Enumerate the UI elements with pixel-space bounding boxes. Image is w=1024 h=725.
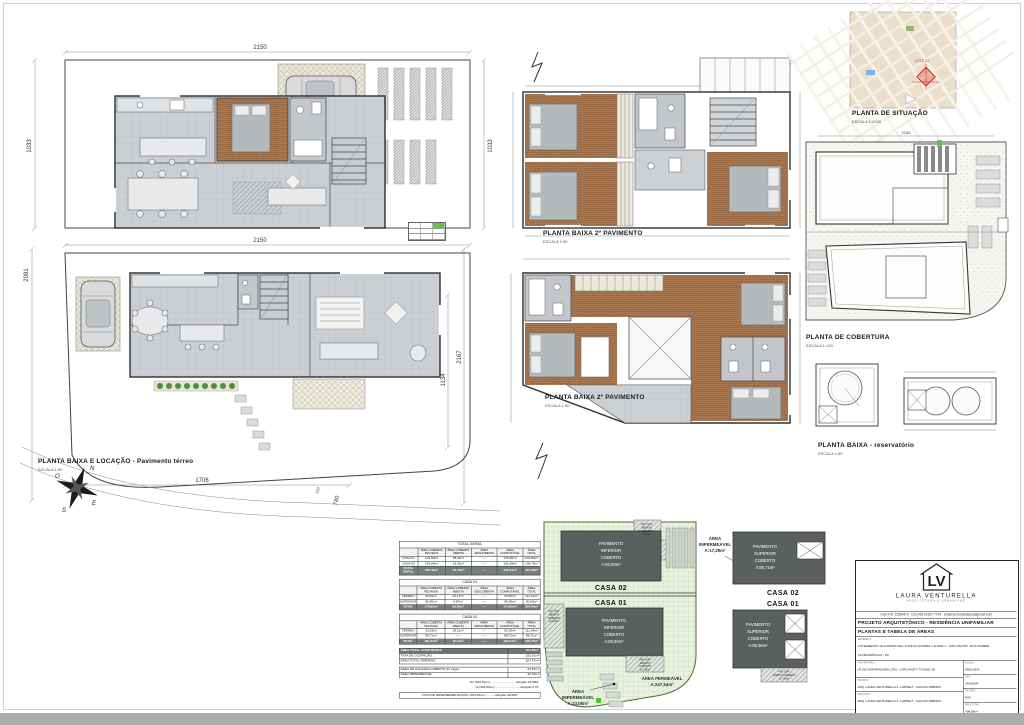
table-cell: 404,59m² <box>523 566 540 575</box>
bathroom-top-left <box>525 275 571 321</box>
legend-stamp <box>408 222 446 241</box>
floor-plan-terreo-casa02: 2150 1033 1033 <box>20 38 500 235</box>
dimension-2167: 2167 <box>457 350 463 364</box>
project-label: PROJETO: <box>858 679 962 682</box>
dimension-2150-mid: 2150 <box>253 238 267 244</box>
planA-scale: ESCALA 1:50 <box>543 239 567 244</box>
casa02-label: CASA 02 <box>595 585 627 592</box>
balcony <box>567 385 691 423</box>
site-marker-label: LOTE 02 <box>915 59 929 63</box>
dimension-1706: 1706 <box>195 478 209 484</box>
title-block-left-column: PROPRIETÁRIO: LR INCORPORADORA LTDA - CN… <box>856 661 964 714</box>
svg-text:COBERTO: COBERTO <box>755 558 776 563</box>
owner-label: PROPRIETÁRIO: <box>858 662 962 665</box>
table-casa01: CASA 01 ÁREA COBERTA FECHADAÁREA COBERTA… <box>399 579 540 610</box>
hatch-top-text: PAV. SUP. ABERTO COBERTO A:9,06m² <box>641 523 653 536</box>
svg-text:COBERTO: COBERTO <box>748 636 769 641</box>
area-total-value: 404,59m² <box>965 711 978 714</box>
reservoir-detail-1 <box>816 364 878 426</box>
svg-text:PAVIMENTO: PAVIMENTO <box>753 544 778 549</box>
svg-text:ÁREA: ÁREA <box>572 689 585 694</box>
svg-text:INFERIOR: INFERIOR <box>601 548 621 553</box>
table-casa02: CASA 02 ÁREA COBERTA FECHADAÁREA COBERTA… <box>399 614 540 645</box>
car-pad <box>76 277 120 351</box>
compass-s: S <box>62 508 66 514</box>
address-label: ENDEREÇO: <box>858 638 1015 641</box>
exec-author-field: EXECUÇÃO: ARQ. LAURA VENTURELLA A. LOPPE… <box>856 692 963 706</box>
title-block: LV LAURA VENTURELLA ARQUITETURA E URBANI… <box>855 560 1019 713</box>
break-symbol-2 <box>533 443 553 481</box>
cobertura-scale: ESCALA 1:100 <box>806 343 833 348</box>
dimension-1033-right: 1033 <box>488 139 494 153</box>
dimension-2081: 2081 <box>24 268 30 282</box>
staircase <box>260 275 288 319</box>
floor-plan-terreo-locacao: 2150 2081 2167 1134 1706 740 100 <box>20 235 500 517</box>
utility-box <box>998 218 1008 232</box>
hatch-pav-sup-bottom: PAV. SUP. ABERTO COBERTO A:7,55m² <box>626 656 664 672</box>
table-cell: 181,64m² <box>417 639 445 644</box>
compass-e: E <box>92 501 97 507</box>
table-cell: ÁREA IMPERMEÁVEL <box>399 672 508 677</box>
skylight-void <box>629 317 691 379</box>
table-cell: 114,01m² <box>523 594 540 599</box>
table-cell: 176,80m² <box>417 605 445 610</box>
dimension-1134: 1134 <box>441 373 447 387</box>
table-cell: 204,84m² <box>523 556 540 561</box>
break-symbol <box>532 52 542 82</box>
project-author-value: ARQ. LAURA VENTURELLA A. LOPPELT - CAU-R… <box>858 686 942 689</box>
note-impermeabilizacao: TAXA DE IMPERMEABILIZAÇÃO (263,53m²)....… <box>399 692 540 698</box>
dimension-100: 100 <box>314 486 321 494</box>
escala-label: ESCALA: <box>965 662 1015 665</box>
permeavel-label: ÁREA PERMEÁVEL <box>642 676 683 681</box>
svg-text:COBERTO: COBERTO <box>601 555 622 560</box>
owner-value: LR INCORPORADORA LTDA - CNPJ:44.877.771/… <box>858 669 936 672</box>
title-block-logo-area: LV LAURA VENTURELLA ARQUITETURA E URBANI… <box>856 561 1017 612</box>
table-row: TOTAL176,80m²28,04m²----176,80m²204,84m² <box>399 605 540 610</box>
svg-text:LV: LV <box>927 573 945 590</box>
situacao-scale: ESCALA 1:2000 <box>852 119 881 124</box>
drawing-sheet: 2150 1033 1033 <box>0 0 1024 713</box>
plan1-title: PLANTA BAIXA E LOCAÇÃO - Pavimento térre… <box>38 458 193 465</box>
rev-value: R04 <box>965 697 971 700</box>
studio-subtitle: ARQUITETURA E URBANISMO <box>907 600 966 603</box>
table-cell: 527,47m² <box>508 659 540 664</box>
svg-text:A:92,93m²: A:92,93m² <box>601 562 621 567</box>
casa01-superior-block: PAVIMENTO SUPERIOR COBERTO A:85,96m² <box>733 610 807 668</box>
staircase <box>710 98 756 146</box>
svg-text:PAVIMENTO: PAVIMENTO <box>746 622 771 627</box>
table-cell: 358,44m² <box>418 566 446 575</box>
bedroom-2 <box>525 162 633 226</box>
casa02-label: CASA 02 <box>767 590 799 597</box>
svg-text:PAVIMENTO: PAVIMENTO <box>602 618 627 623</box>
dimension-1033-left: 1033 <box>27 139 33 153</box>
planA-title: PLANTA BAIXA 2º PAVIMENTO <box>543 230 643 237</box>
svg-text:A:23,05m²: A:23,05m² <box>568 701 590 706</box>
table-resumo-2: ÁREA DE CALÇADA COBERTA (C/ vaga)29,52m²… <box>399 667 540 678</box>
highlight-mark <box>596 698 601 703</box>
svg-text:SUPERIOR: SUPERIOR <box>754 551 776 556</box>
situation-map: LOTE 02 <box>850 12 956 108</box>
rev-label: REVISÃO: <box>965 690 1015 693</box>
compass-o: O <box>55 474 60 480</box>
casa02-inferior-block: PAVIMENTO INFERIOR COBERTO A:92,93m² <box>561 531 661 581</box>
map-feature-blue <box>866 70 875 75</box>
map-feature-green <box>906 26 914 31</box>
table-cell: 18,11m² <box>445 639 471 644</box>
bathroom <box>238 275 258 309</box>
table-cell: TOTAL <box>399 639 417 644</box>
table-row: ÁREA TOTAL TERRENO527,47m² <box>399 659 540 664</box>
casa01-inferior-block: PAVIMENTO INFERIOR COBERTO A:90,84m² <box>566 608 663 656</box>
bedroom-top-right <box>741 283 785 325</box>
table-cell: ---- <box>471 605 497 610</box>
reservoir-plan <box>812 360 1002 440</box>
studio-name: LAURA VENTURELLA <box>896 592 977 599</box>
situacao-title: PLANTA DE SITUAÇÃO <box>852 110 928 117</box>
svg-text:IMPERMEÁVEL: IMPERMEÁVEL <box>699 542 732 547</box>
garden-strip <box>154 381 238 391</box>
pergola <box>914 144 956 174</box>
svg-text:A:9,06m²: A:9,06m² <box>642 533 652 536</box>
roof-plan: 2150 <box>798 130 1016 330</box>
svg-text:INFERIOR: INFERIOR <box>604 625 624 630</box>
plan1-scale: ESCALA 1:50 <box>38 467 62 472</box>
bedroom-left <box>529 333 609 377</box>
svg-text:A:90,84m²: A:90,84m² <box>604 639 624 644</box>
area-tables: TOTAL GERAL ÁREA COBERTA FECHADAÁREA COB… <box>399 541 544 713</box>
reservoir-detail-2 <box>904 372 996 430</box>
svg-text:SUPERIOR: SUPERIOR <box>747 629 769 634</box>
table-cell: 199,75m² <box>523 561 540 566</box>
table-cell: TOTAL GERAL <box>399 566 417 575</box>
hatch-pav-sup-bottom: PAV. SUP. ABERTO COBERTO A:7,55m² <box>761 668 807 682</box>
table-cell: 28,04m² <box>445 605 471 610</box>
table-cell: ---- <box>472 566 498 575</box>
grass-paver-strips <box>378 68 452 184</box>
svg-text:A:85,96m²: A:85,96m² <box>748 643 768 648</box>
dimension-2150-top: 2150 <box>253 45 267 51</box>
table-row: TOTAL GERAL358,44m²46,15m²----358,44m²40… <box>399 566 540 575</box>
dimension-740: 740 <box>333 494 342 506</box>
upper-floor-area-diagram: ÁREA IMPERMEÁVEL A:17,29m² PAVIMENTO SUP… <box>695 518 837 708</box>
title-block-right-column: ESCALA: INDICADA DATA: JAN/2024 REVISÃO:… <box>964 661 1017 714</box>
table-cell: 176,80m² <box>497 605 523 610</box>
table-row: TOTAL181,64m²18,11m²----181,64m²199,75m² <box>399 639 540 644</box>
suite-bedroom <box>217 98 288 161</box>
table-cell: TÉRREO <box>399 629 417 634</box>
table-cell: ---- <box>471 639 497 644</box>
svg-text:A:7,55m²: A:7,55m² <box>640 669 650 672</box>
table-cell: SUPERIOR <box>399 634 417 639</box>
hatch-pav-sup-left: PAV. SUP. ABERTO COBERTO A:8,06m² <box>544 604 564 648</box>
staircase <box>332 138 366 184</box>
bedroom-bottom-right <box>731 387 781 419</box>
dimension-2150-roof: 2150 <box>902 130 912 135</box>
project-title: PROJETO ARQUITETÔNICO - RESIDÊNCIA UNIFA… <box>856 619 1017 628</box>
compass-n: N <box>90 466 95 472</box>
terrace-gravel <box>293 379 365 409</box>
permeable-area-diagram: PAVIMENTO INFERIOR COBERTO A:92,93m² PAV… <box>538 516 706 713</box>
bedroom-1 <box>525 94 633 158</box>
closet-strip <box>575 275 663 291</box>
table-cell: 111,04m² <box>523 629 540 634</box>
svg-text:PAVIMENTO: PAVIMENTO <box>599 541 624 546</box>
svg-text:A:7,55m²: A:7,55m² <box>779 678 789 681</box>
bathrooms-center <box>635 94 705 190</box>
table-cell: TÉRREO <box>399 594 417 599</box>
svg-text:ÁREA: ÁREA <box>709 536 722 541</box>
stepping-stones <box>235 395 270 450</box>
casa01-label: CASA 01 <box>767 601 799 608</box>
reservatorio-scale: ESCALA 1:50 <box>818 451 842 456</box>
escala-value: INDICADA <box>965 669 979 672</box>
cobertura-title: PLANTA DE COBERTURA <box>806 334 890 341</box>
floor-plan-2pav-a <box>505 50 805 242</box>
svg-text:COBERTO: COBERTO <box>604 632 625 637</box>
table-cell: 204,84m² <box>523 605 540 610</box>
svg-text:IMPERMEÁVEL: IMPERMEÁVEL <box>562 695 595 700</box>
escala-field: ESCALA: INDICADA <box>964 661 1017 675</box>
bedroom-3 <box>707 152 788 226</box>
data-value: JAN/2024 <box>965 683 978 686</box>
address-value: LOTEAMENTO VILA PAMPLONA, LOTE 02 QUADRA… <box>858 645 991 657</box>
reservatorio-title: PLANTA BAIXA - reservatório <box>818 442 914 449</box>
studio-contact: CAU-RS: 155845-5 - Cel.(48) 99157-7734 -… <box>856 612 1017 619</box>
owner-field: PROPRIETÁRIO: LR INCORPORADORA LTDA - CN… <box>856 661 963 679</box>
casa01-label: CASA 01 <box>595 600 627 607</box>
table-resumo: ÁREA TOTAL CONSTRUÍDA404,59m²TAXA DE OCU… <box>399 648 540 664</box>
svg-text:A:17,29m²: A:17,29m² <box>705 548 727 553</box>
address-field: ENDEREÇO: LOTEAMENTO VILA PAMPLONA, LOTE… <box>856 637 1017 661</box>
area-total-label: ÁREA TOTAL: <box>965 704 1015 707</box>
table-cell: 199,75m² <box>523 639 540 644</box>
bathrooms-right <box>721 337 785 381</box>
table-cell: 40,34m² <box>508 672 540 677</box>
planB-scale: ESCALA 1:50 <box>545 403 569 408</box>
table-cell: TOTAL <box>399 605 417 610</box>
resumo-notes: TO (232,01m²)...........................… <box>399 680 540 690</box>
table-cell: 358,44m² <box>497 566 523 575</box>
table-cell: 46,15m² <box>445 566 471 575</box>
data-label: DATA: <box>965 676 1015 679</box>
table-row: ÁREA IMPERMEÁVEL40,34m² <box>399 672 540 677</box>
exec-author-value: ARQ. LAURA VENTURELLA A. LOPPELT - CAU-R… <box>858 700 942 703</box>
sheet-content: PLANTAS E TABELA DE ÁREAS <box>856 628 1017 637</box>
table-total-geral: TOTAL GERAL ÁREA COBERTA FECHADAÁREA COB… <box>399 541 540 575</box>
rev-field: REVISÃO: R04 <box>964 689 1017 703</box>
bathroom <box>290 98 326 161</box>
data-field: DATA: JAN/2024 <box>964 675 1017 689</box>
roof-casa01 <box>826 242 970 314</box>
casa02-superior-block: PAVIMENTO SUPERIOR COBERTO A:88,71m² <box>733 532 825 584</box>
planB-title: PLANTA BAIXA 2º PAVIMENTO <box>545 394 645 401</box>
exec-label: EXECUÇÃO: <box>858 693 962 696</box>
note-ia: IA (404,59m²)...........................… <box>399 685 538 690</box>
svg-text:A:8,06m²: A:8,06m² <box>549 620 559 623</box>
svg-text:A:247,54m²: A:247,54m² <box>650 682 674 687</box>
studio-logo-icon: LV <box>920 563 952 591</box>
highlight-mark <box>937 140 942 147</box>
table-cell: ÁREA TOTAL TERRENO <box>399 659 508 664</box>
project-author-field: PROJETO: ARQ. LAURA VENTURELLA A. LOPPEL… <box>856 678 963 692</box>
svg-text:A:88,71m²: A:88,71m² <box>755 565 775 570</box>
table-cell: 181,64m² <box>497 639 523 644</box>
area-total-field: ÁREA TOTAL: 404,59m² <box>964 703 1017 714</box>
